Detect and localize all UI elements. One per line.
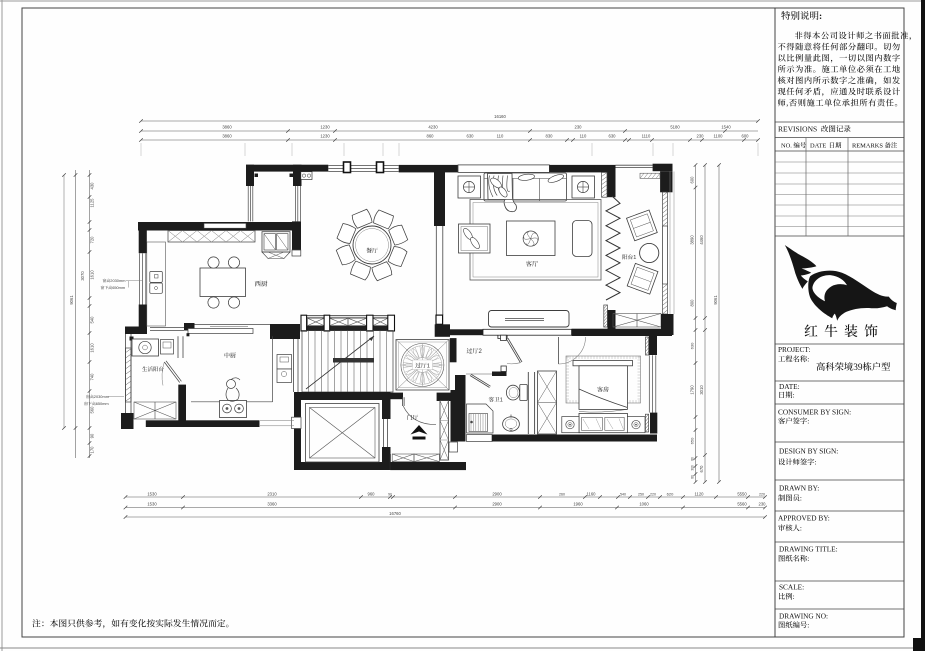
- svg-text::: :: [793, 592, 795, 601]
- svg-text:DRAWING TITLE:: DRAWING TITLE:: [779, 545, 838, 554]
- svg-text:220: 220: [759, 492, 765, 496]
- svg-text:3890: 3890: [690, 235, 695, 245]
- svg-text:430: 430: [90, 182, 95, 190]
- svg-text:80: 80: [691, 457, 695, 461]
- svg-text:300: 300: [691, 465, 695, 471]
- svg-text::: :: [807, 417, 809, 426]
- svg-text:16160: 16160: [494, 114, 506, 119]
- svg-text:650: 650: [690, 437, 695, 444]
- svg-text:540: 540: [620, 492, 626, 496]
- svg-text:DESIGN BY SIGN:: DESIGN BY SIGN:: [779, 447, 838, 456]
- svg-text:5560: 5560: [737, 502, 747, 507]
- svg-text:CONSUMER BY SIGN:: CONSUMER BY SIGN:: [778, 408, 851, 417]
- svg-text:NO.: NO.: [781, 143, 792, 150]
- svg-text:230: 230: [697, 134, 705, 139]
- svg-text:4460: 4460: [699, 235, 704, 245]
- svg-text:2310: 2310: [267, 491, 277, 496]
- svg-text:9061: 9061: [69, 295, 74, 305]
- svg-text:5180: 5180: [670, 124, 680, 129]
- svg-text:220: 220: [650, 492, 656, 496]
- svg-text:1160: 1160: [586, 491, 596, 496]
- svg-text:110: 110: [580, 134, 587, 139]
- svg-text:630: 630: [690, 342, 695, 349]
- svg-text::: :: [800, 494, 802, 503]
- svg-text:2030mm: 2030mm: [110, 278, 125, 283]
- svg-text:670: 670: [699, 465, 704, 473]
- svg-text:1: 1: [633, 255, 636, 261]
- svg-text:860: 860: [427, 134, 435, 139]
- svg-text:1540: 1540: [721, 124, 731, 129]
- svg-text:230: 230: [575, 124, 583, 129]
- svg-text:960: 960: [368, 491, 376, 496]
- svg-text:90: 90: [90, 433, 95, 438]
- svg-text:720: 720: [90, 236, 95, 244]
- svg-text:540: 540: [90, 316, 95, 324]
- svg-text:80: 80: [691, 475, 695, 479]
- svg-text:3860: 3860: [222, 134, 232, 139]
- svg-text:39: 39: [853, 363, 863, 373]
- svg-text:830: 830: [546, 134, 554, 139]
- svg-text:1: 1: [500, 398, 503, 404]
- svg-text:630: 630: [609, 134, 617, 139]
- svg-text:250: 250: [638, 492, 644, 496]
- svg-text:1230: 1230: [320, 134, 330, 139]
- svg-text:DRAWING NO:: DRAWING NO:: [779, 612, 828, 621]
- svg-text:740: 740: [90, 373, 95, 381]
- svg-text:2900: 2900: [492, 491, 502, 496]
- svg-text:800: 800: [690, 299, 695, 307]
- svg-text:230: 230: [759, 502, 767, 507]
- svg-text::: :: [793, 391, 795, 400]
- svg-text:1960: 1960: [573, 502, 583, 507]
- svg-text:1: 1: [427, 364, 430, 370]
- svg-text:650mm: 650mm: [96, 401, 109, 406]
- svg-text:4230: 4230: [428, 124, 438, 129]
- svg-text:1610: 1610: [90, 270, 95, 280]
- svg-text:DRAWN BY:: DRAWN BY:: [779, 484, 819, 493]
- svg-text:PROJECT:: PROJECT:: [778, 345, 810, 354]
- svg-text:1230: 1230: [320, 124, 330, 129]
- svg-text:1530: 1530: [147, 491, 157, 496]
- svg-text:DATE:: DATE:: [779, 382, 800, 391]
- svg-text::: :: [819, 12, 822, 22]
- svg-text:3010: 3010: [699, 385, 704, 395]
- svg-text:110: 110: [497, 134, 504, 139]
- svg-text:1610: 1610: [90, 343, 95, 353]
- svg-text::: :: [800, 524, 802, 533]
- svg-text:3360: 3360: [267, 502, 277, 507]
- svg-text:5550: 5550: [737, 491, 747, 496]
- svg-text:2030mm: 2030mm: [94, 394, 109, 399]
- svg-text:1110: 1110: [642, 134, 651, 139]
- svg-text::: :: [807, 554, 809, 563]
- svg-text:1100: 1100: [713, 134, 723, 139]
- svg-text:SCALE:: SCALE:: [779, 583, 804, 592]
- svg-text:170: 170: [90, 446, 95, 454]
- svg-text:1120: 1120: [694, 491, 704, 496]
- svg-text:2900: 2900: [492, 502, 502, 507]
- svg-text::: :: [815, 458, 817, 467]
- svg-text:REVISIONS: REVISIONS: [778, 125, 817, 134]
- svg-text:3070: 3070: [80, 271, 85, 281]
- svg-text:630: 630: [467, 134, 475, 139]
- svg-text:,: ,: [786, 99, 788, 108]
- svg-text:3860: 3860: [222, 124, 232, 129]
- svg-text:650mm: 650mm: [112, 285, 125, 290]
- svg-text:16760: 16760: [389, 511, 401, 516]
- svg-text:620: 620: [667, 491, 674, 496]
- svg-text:1790: 1790: [690, 385, 695, 395]
- svg-text:APPROVED BY:: APPROVED BY:: [778, 514, 830, 523]
- svg-text:260: 260: [559, 492, 565, 496]
- svg-text:1125: 1125: [90, 198, 95, 208]
- svg-text:1060: 1060: [639, 502, 649, 507]
- svg-text:600: 600: [690, 176, 695, 184]
- svg-text:90: 90: [388, 492, 392, 496]
- svg-text:1530: 1530: [147, 502, 157, 507]
- svg-text::: :: [807, 621, 809, 630]
- svg-text:560: 560: [90, 406, 95, 414]
- svg-text::: :: [807, 355, 809, 364]
- svg-text:600: 600: [742, 134, 750, 139]
- svg-text:DATE: DATE: [810, 143, 826, 150]
- svg-text:9061: 9061: [713, 295, 718, 305]
- svg-text:REMARKS: REMARKS: [852, 143, 883, 150]
